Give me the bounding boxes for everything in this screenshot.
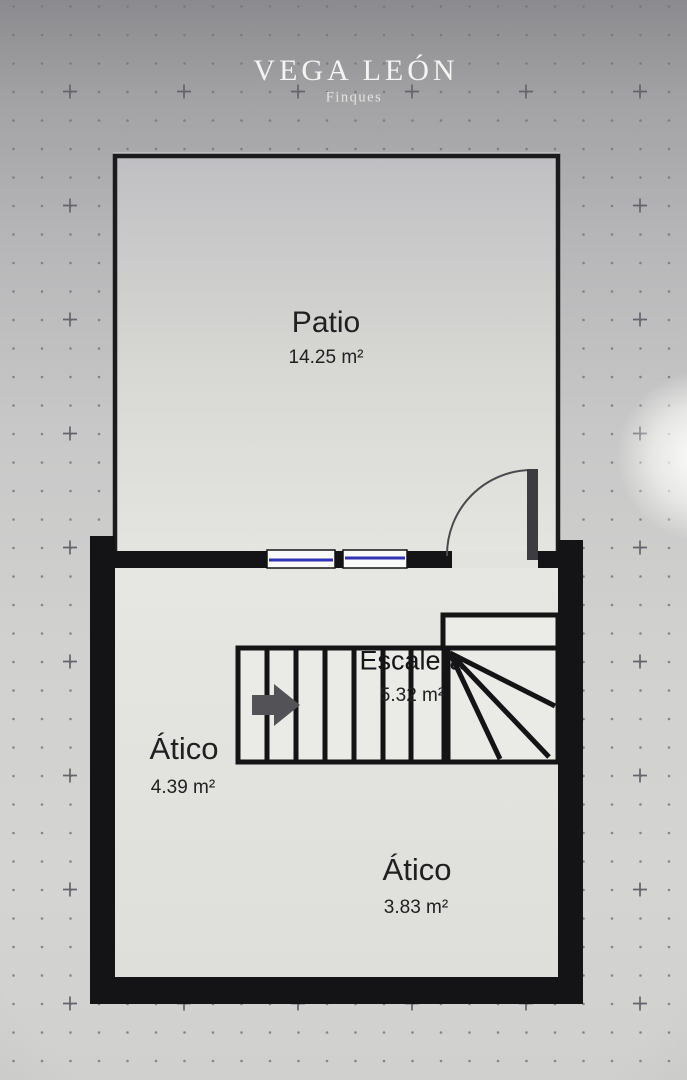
door-opening [452,551,538,568]
window-2 [343,550,407,568]
patio-room-label: Patio [292,306,360,340]
right-wall [558,540,583,1004]
window-1 [267,550,335,568]
agency-brand: VEGA LEÓN [253,54,458,88]
wall-segment [407,551,452,568]
door-leaf [527,469,538,560]
wall-segment [538,551,558,568]
left-wall [90,536,115,1004]
wall-segment [115,551,267,568]
atico-bottom-room-area: 3.83 m² [384,897,448,919]
agency-subtitle: Finques [326,90,382,107]
patio-room-area: 14.25 m² [289,347,364,369]
wall-segment [335,551,343,568]
escalera-room-area: 5.32 m² [380,685,444,707]
escalera-room-label: Escalera [359,646,464,677]
floorplan-drawing [0,0,687,1080]
atico-bottom-room-label: Ático [383,852,452,888]
atico-left-room-area: 4.39 m² [151,777,215,799]
atico-left-room-label: Ático [150,731,219,767]
bottom-wall [90,977,583,1004]
stair-landing [443,615,558,648]
floorplan-photo: VEGA LEÓN Finques Patio 14.25 m² Ático 4… [0,0,687,1080]
